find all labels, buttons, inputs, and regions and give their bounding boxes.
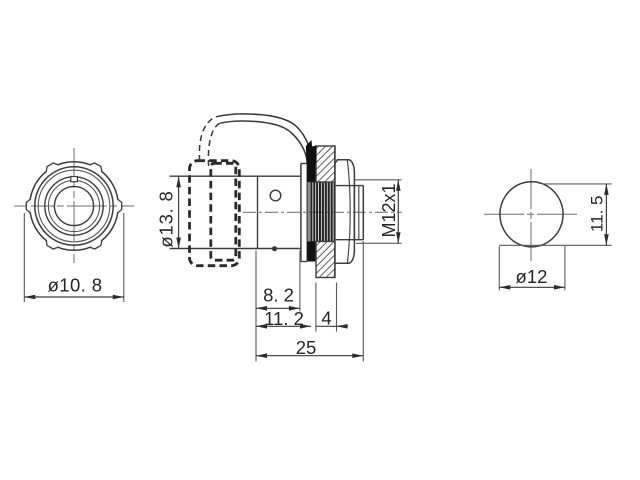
svg-text:M12x1: M12x1 <box>379 183 399 237</box>
svg-text:11. 2: 11. 2 <box>264 308 304 329</box>
svg-text:4: 4 <box>321 308 331 329</box>
svg-text:8. 2: 8. 2 <box>263 285 294 306</box>
svg-text:ø13. 8: ø13. 8 <box>156 190 177 247</box>
svg-text:11. 5: 11. 5 <box>587 196 606 233</box>
svg-text:ø10. 8: ø10. 8 <box>48 275 103 296</box>
svg-text:25: 25 <box>296 337 317 358</box>
svg-text:ø12: ø12 <box>516 266 548 287</box>
